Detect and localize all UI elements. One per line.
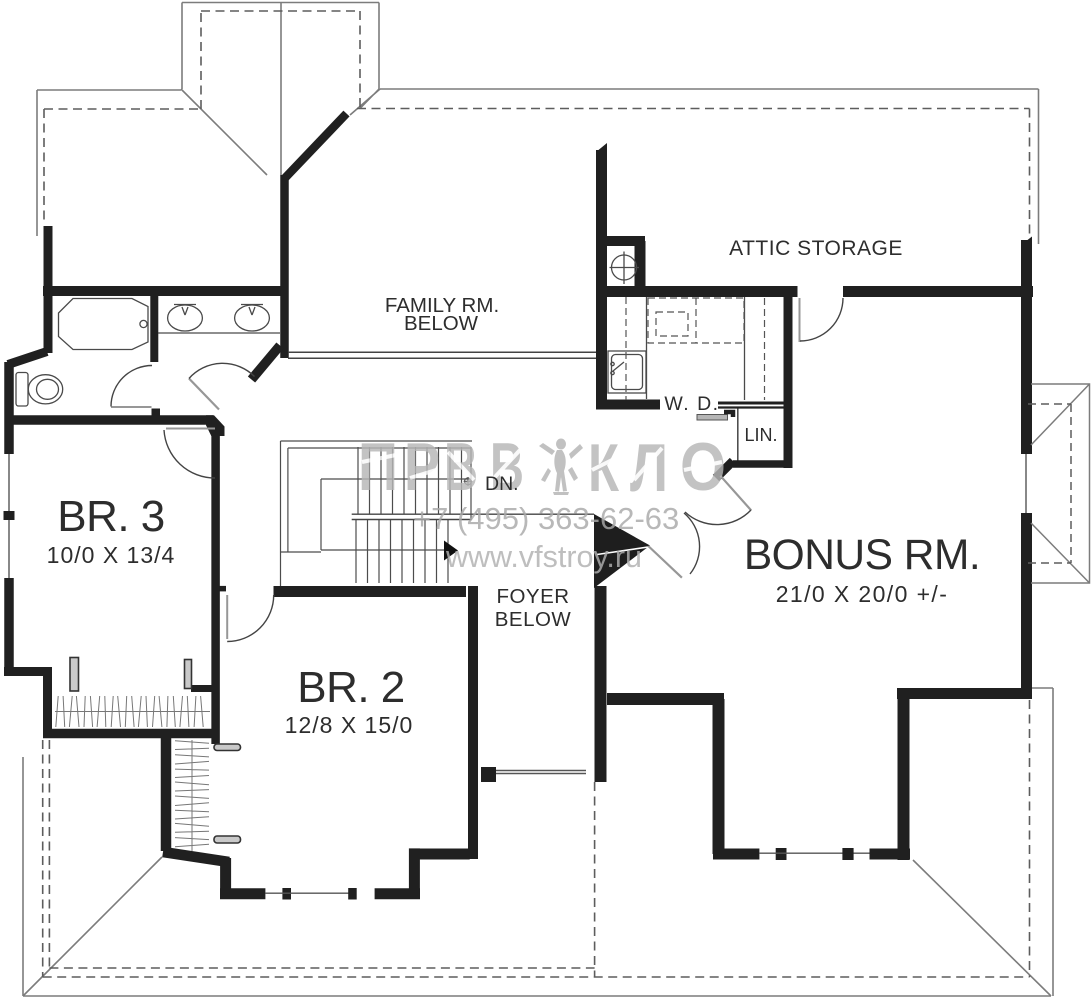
svg-text:+7 (495) 363-62-63: +7 (495) 363-62-63 <box>413 501 679 536</box>
svg-text:П: П <box>358 429 398 505</box>
svg-text:BELOW: BELOW <box>404 312 479 335</box>
svg-text:DN.: DN. <box>485 473 519 495</box>
svg-text:BR. 3: BR. 3 <box>57 492 165 541</box>
svg-text:BONUS RM.: BONUS RM. <box>744 532 980 579</box>
svg-text:LIN.: LIN. <box>744 425 777 445</box>
svg-text:12/8 X 15/0: 12/8 X 15/0 <box>285 712 414 738</box>
svg-text:BR. 2: BR. 2 <box>297 663 405 712</box>
svg-text:W. D.: W. D. <box>664 393 719 415</box>
svg-text:FOYER: FOYER <box>496 585 569 608</box>
svg-text:ATTIC STORAGE: ATTIC STORAGE <box>729 237 903 260</box>
svg-text:10/0 X 13/4: 10/0 X 13/4 <box>47 542 176 568</box>
svg-text:www.vfstroy.ru: www.vfstroy.ru <box>445 540 642 574</box>
svg-text:Л: Л <box>630 430 668 506</box>
svg-text:BELOW: BELOW <box>495 608 572 631</box>
svg-text:21/0 X 20/0 +/-: 21/0 X 20/0 +/- <box>776 581 949 607</box>
svg-text:Р: Р <box>404 429 440 505</box>
